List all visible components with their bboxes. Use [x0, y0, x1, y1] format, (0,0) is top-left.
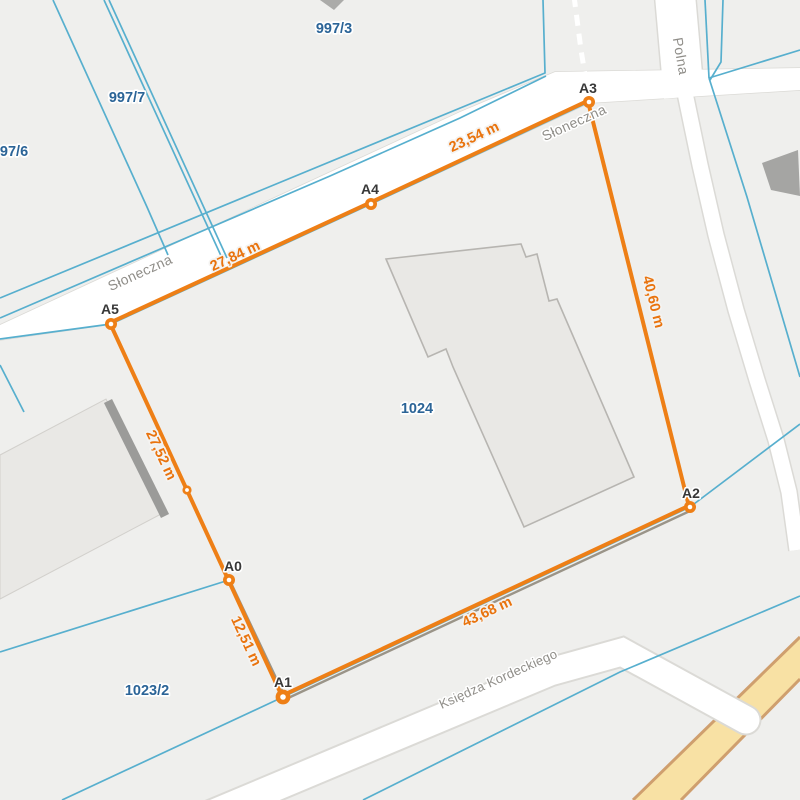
parcel-label-997-6: 997/6 — [0, 144, 28, 160]
vertex-a4-center — [369, 202, 374, 207]
vertex-label-a5: A5 — [101, 301, 119, 317]
measure-vertex-a5[interactable] — [105, 318, 117, 330]
vertex-a0-center — [227, 578, 232, 583]
map-canvas[interactable]: Słoneczna Słoneczna Polna Księdza Kordec… — [0, 0, 800, 800]
parcel-label-1023-2: 1023/2 — [125, 683, 169, 699]
vertex-label-a4: A4 — [361, 181, 379, 197]
parcel-label-1024: 1024 — [401, 401, 433, 417]
measure-vertex-a2[interactable] — [684, 501, 696, 513]
measure-vertex-a1[interactable] — [276, 690, 291, 705]
measure-midpoint-handle[interactable] — [182, 485, 191, 494]
measure-midpoint-inner — [185, 488, 189, 492]
vertex-label-a3: A3 — [579, 80, 597, 96]
vertex-label-a2: A2 — [682, 485, 700, 501]
vertex-label-a1: A1 — [274, 674, 292, 690]
vertex-a5-center — [109, 322, 114, 327]
parcel-label-997-7: 997/7 — [109, 90, 145, 106]
vertex-label-a0: A0 — [224, 558, 242, 574]
measure-vertex-a0[interactable] — [223, 574, 235, 586]
map-svg: Słoneczna Słoneczna Polna Księdza Kordec… — [0, 0, 800, 800]
vertex-a1-center — [280, 694, 286, 700]
vertex-a3-center — [587, 100, 592, 105]
measure-vertex-a4[interactable] — [365, 198, 377, 210]
vertex-a2-center — [688, 505, 693, 510]
parcel-label-997-3: 997/3 — [316, 21, 352, 37]
